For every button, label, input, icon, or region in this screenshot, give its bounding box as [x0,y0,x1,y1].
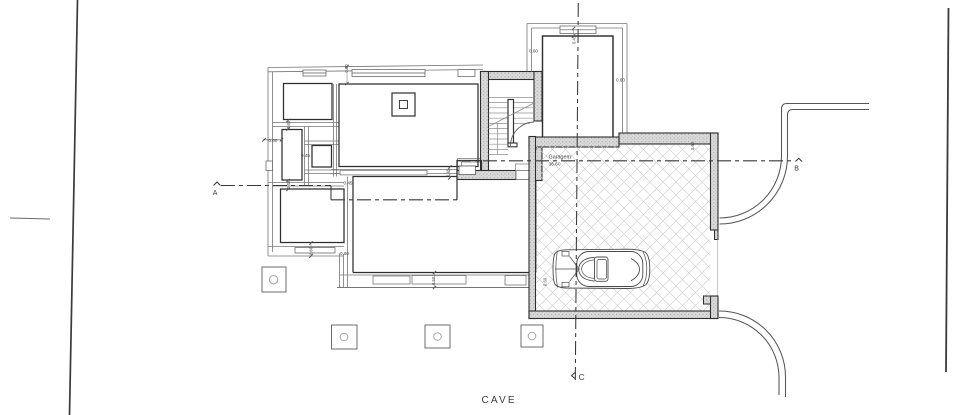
svg-text:Garagem: Garagem [549,154,572,160]
svg-text:0.60: 0.60 [690,141,695,150]
svg-text:0.45: 0.45 [344,180,353,185]
svg-text:C: C [579,372,585,382]
svg-text:0.45: 0.45 [572,35,577,44]
svg-text:0.60: 0.60 [543,277,548,286]
svg-text:0.60: 0.60 [616,78,625,83]
svg-text:36.60: 36.60 [549,162,561,168]
svg-text:CAVE: CAVE [482,395,517,406]
svg-text:-0.60: -0.60 [339,251,350,256]
svg-text:A: A [213,190,218,197]
svg-text:0.60: 0.60 [431,276,436,285]
svg-text:0.45: 0.45 [301,153,310,158]
svg-text:B: B [794,166,799,173]
svg-text:0.60: 0.60 [269,138,278,143]
svg-text:0.60: 0.60 [529,49,538,54]
